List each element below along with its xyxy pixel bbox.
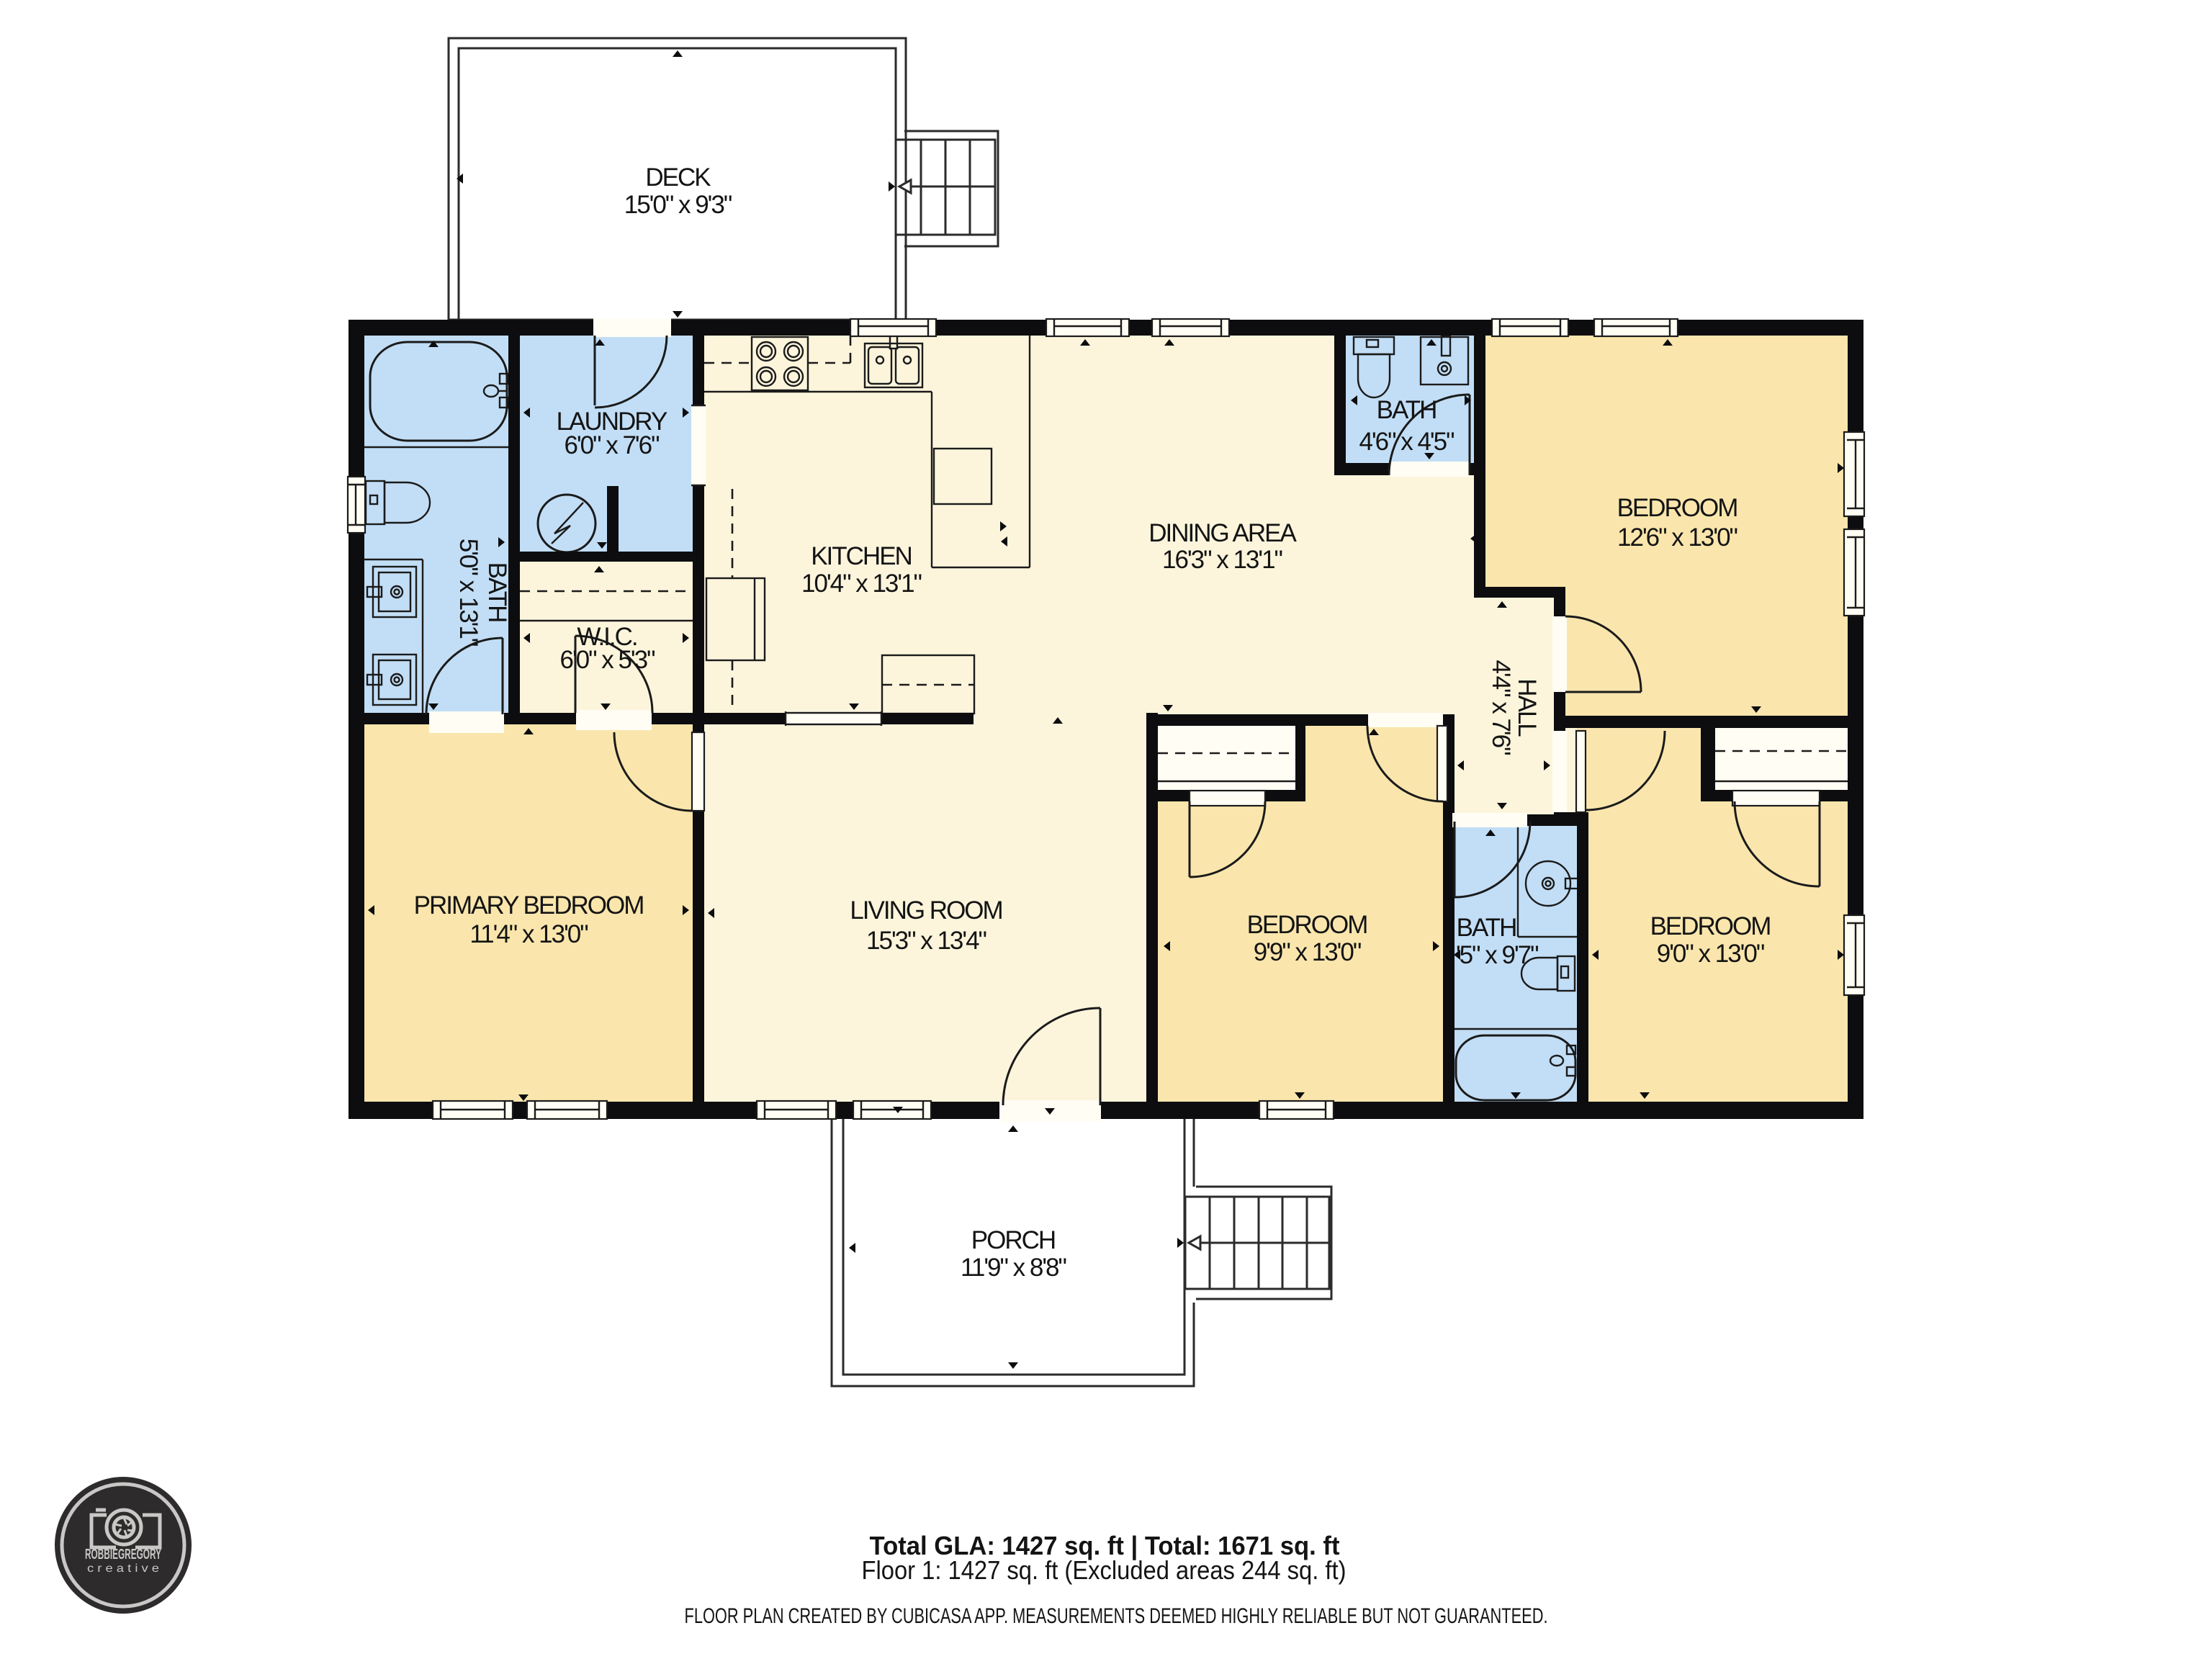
svg-text:10'4" x 13'1": 10'4" x 13'1" xyxy=(801,570,922,598)
svg-text:BATH: BATH xyxy=(483,562,511,622)
svg-text:6'0" x 5'3": 6'0" x 5'3" xyxy=(559,646,655,674)
svg-text:HALL: HALL xyxy=(1513,678,1541,737)
svg-text:LIVING ROOM: LIVING ROOM xyxy=(850,896,1002,925)
svg-text:DINING AREA: DINING AREA xyxy=(1148,519,1297,547)
svg-text:11'4" x 13'0": 11'4" x 13'0" xyxy=(469,920,588,948)
svg-text:'5" x 9'7": '5" x 9'7" xyxy=(1456,941,1538,969)
svg-text:PRIMARY BEDROOM: PRIMARY BEDROOM xyxy=(414,891,644,920)
svg-text:12'6" x 13'0": 12'6" x 13'0" xyxy=(1617,523,1737,552)
svg-text:FLOOR PLAN CREATED BY CUBICASA: FLOOR PLAN CREATED BY CUBICASA APP. MEAS… xyxy=(685,1604,1548,1628)
svg-text:BEDROOM: BEDROOM xyxy=(1247,911,1367,939)
svg-text:9'9" x 13'0": 9'9" x 13'0" xyxy=(1254,938,1361,966)
svg-text:c r e a t i v e: c r e a t i v e xyxy=(87,1563,159,1575)
svg-text:BATH: BATH xyxy=(1457,914,1516,942)
svg-text:6'0" x 7'6": 6'0" x 7'6" xyxy=(564,431,659,459)
svg-text:BEDROOM: BEDROOM xyxy=(1650,912,1771,940)
svg-text:ROBBIEGREGORY: ROBBIEGREGORY xyxy=(85,1547,161,1563)
svg-text:4'6" x 4'5": 4'6" x 4'5" xyxy=(1359,428,1454,456)
svg-text:16'3" x 13'1": 16'3" x 13'1" xyxy=(1162,546,1282,574)
svg-text:5'0" x 13'1": 5'0" x 13'1" xyxy=(454,539,482,646)
svg-text:Floor 1: 1427 sq. ft (Excluded: Floor 1: 1427 sq. ft (Excluded areas 244… xyxy=(862,1555,1346,1585)
svg-text:PORCH: PORCH xyxy=(971,1226,1055,1254)
svg-text:11'9" x 8'8": 11'9" x 8'8" xyxy=(961,1254,1066,1282)
svg-text:15'0" x 9'3": 15'0" x 9'3" xyxy=(624,191,732,219)
svg-text:4'4" x 7'6": 4'4" x 7'6" xyxy=(1487,660,1515,755)
svg-text:KITCHEN: KITCHEN xyxy=(811,542,912,570)
svg-text:BEDROOM: BEDROOM xyxy=(1617,494,1737,522)
svg-text:DECK: DECK xyxy=(645,163,711,192)
svg-text:15'3" x 13'4": 15'3" x 13'4" xyxy=(866,927,986,955)
svg-text:BATH: BATH xyxy=(1377,396,1437,424)
svg-text:9'0" x 13'0": 9'0" x 13'0" xyxy=(1657,940,1764,968)
